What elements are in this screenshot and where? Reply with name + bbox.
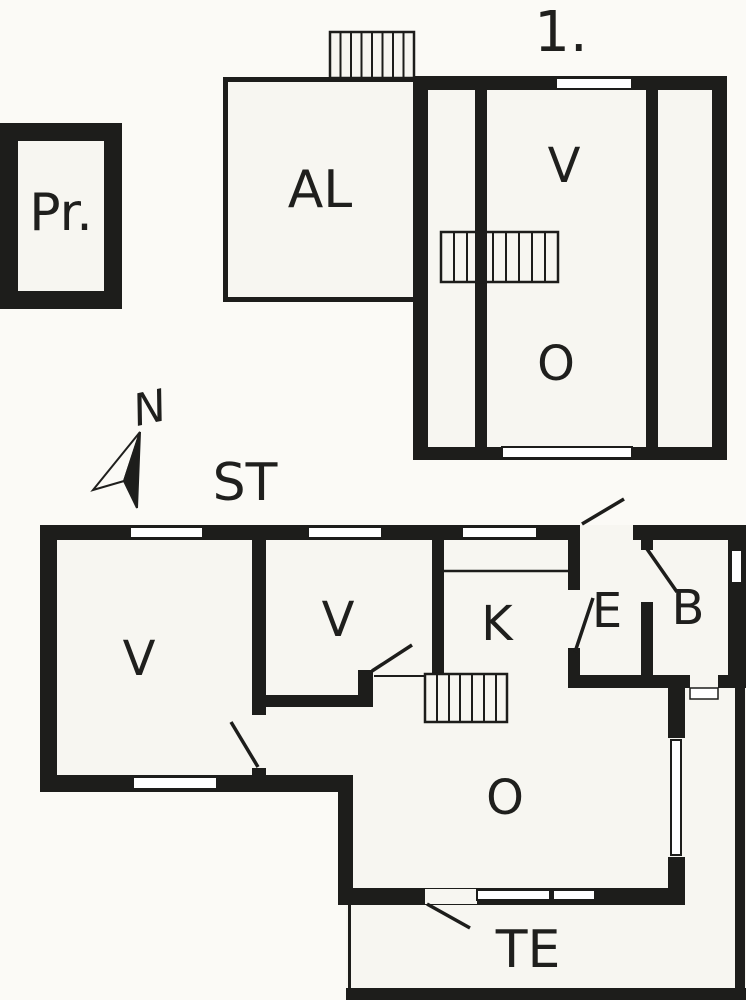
window [477, 890, 550, 900]
street-label: ST [213, 457, 278, 509]
room-label-v2: V [322, 596, 355, 644]
window [671, 740, 681, 855]
north-arrow-icon [93, 432, 140, 508]
upper-floor-plan [413, 76, 727, 460]
upper-floor-label: 1. [534, 5, 587, 61]
window [553, 890, 595, 900]
room-label-o-upper: O [537, 340, 575, 388]
ground-floor-plan [40, 499, 746, 1000]
room-label-v-upper: V [548, 142, 581, 190]
upper-stairs-icon [441, 232, 558, 282]
window [462, 527, 537, 538]
outbuilding-label: Pr. [29, 187, 93, 239]
attic-room-label: AL [288, 164, 353, 216]
room-label-v1: V [123, 635, 156, 683]
window [130, 527, 203, 538]
window [556, 78, 632, 89]
terrace-label: TE [496, 924, 561, 976]
room-label-o-ground: O [486, 774, 524, 822]
ground-stairs-icon [425, 674, 507, 722]
floor-plan-drawing [0, 0, 746, 1000]
room-label-e: E [592, 587, 622, 635]
entrance-door-swing [582, 499, 624, 524]
window [731, 550, 742, 583]
room-label-k: K [481, 600, 512, 648]
window [502, 447, 632, 458]
window [308, 527, 382, 538]
room-label-b: B [672, 584, 705, 632]
floor-plan-canvas: Pr. AL 1. V O N ST V V K E B O TE [0, 0, 746, 1000]
attic-stairs-icon [330, 32, 414, 78]
window [133, 777, 217, 789]
door-step [690, 688, 718, 699]
